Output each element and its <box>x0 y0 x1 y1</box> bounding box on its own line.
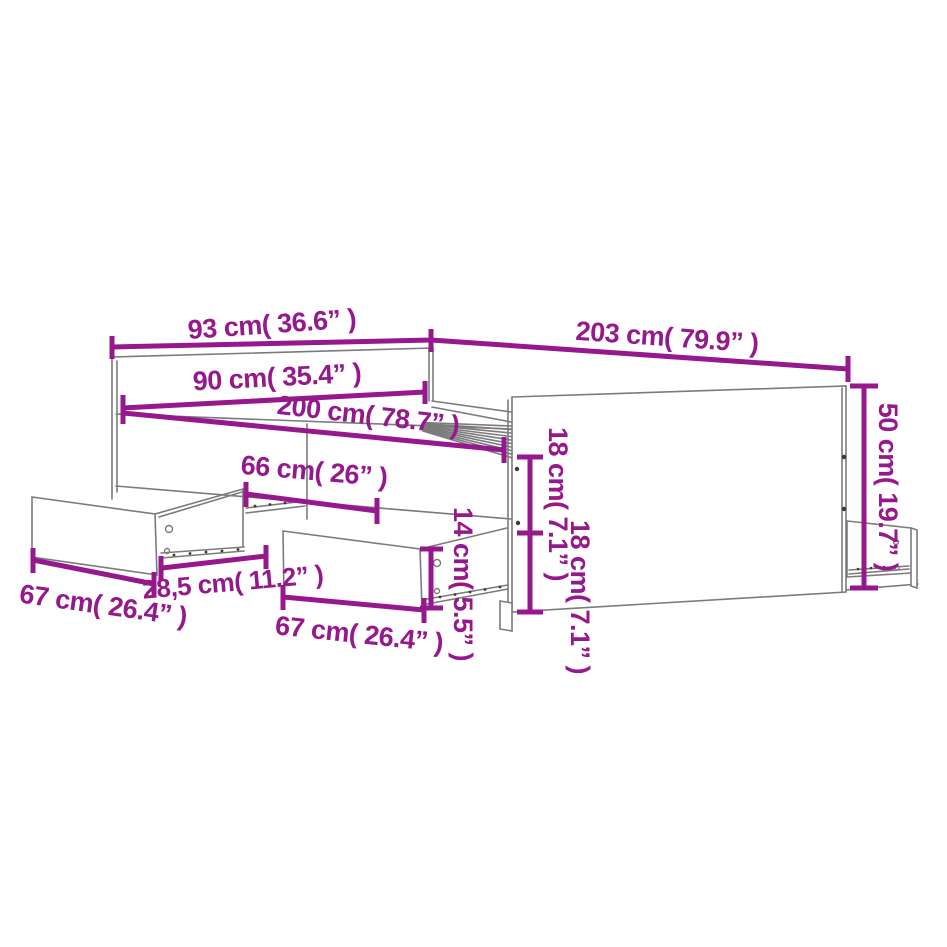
dim-label-lower-side-height: 18 cm( 7.1” ) <box>565 520 595 674</box>
dim-inner-length: 200 cm( 78.7” ) <box>123 390 504 463</box>
footboard-leg <box>500 601 512 631</box>
dim-drawer-bay-width: 66 cm( 26” ) <box>240 450 389 524</box>
dim-label-headboard-width: 93 cm( 36.6” ) <box>187 303 357 345</box>
dim-label-drawer-front-height: 14 cm( 5.5” ) <box>448 507 478 661</box>
dim-footboard-height: 50 cm( 19.7” ) <box>850 386 903 588</box>
dim-outer-length: 203 cm( 79.9” ) <box>431 316 848 382</box>
dim-label-inner-width: 90 cm( 35.4” ) <box>192 358 362 397</box>
dim-label-footboard-height: 50 cm( 19.7” ) <box>873 403 903 572</box>
dim-label-drawer-bay-width: 66 cm( 26” ) <box>240 450 389 493</box>
diagram-canvas: 93 cm( 36.6” ) 203 cm( 79.9” ) 90 cm( 35… <box>0 0 947 947</box>
bed-frame-dimension-diagram: 93 cm( 36.6” ) 203 cm( 79.9” ) 90 cm( 35… <box>0 0 947 947</box>
dim-headboard-width: 93 cm( 36.6” ) <box>112 303 431 359</box>
dim-label-middle-drawer-width: 67 cm( 26.4” ) <box>274 610 445 657</box>
